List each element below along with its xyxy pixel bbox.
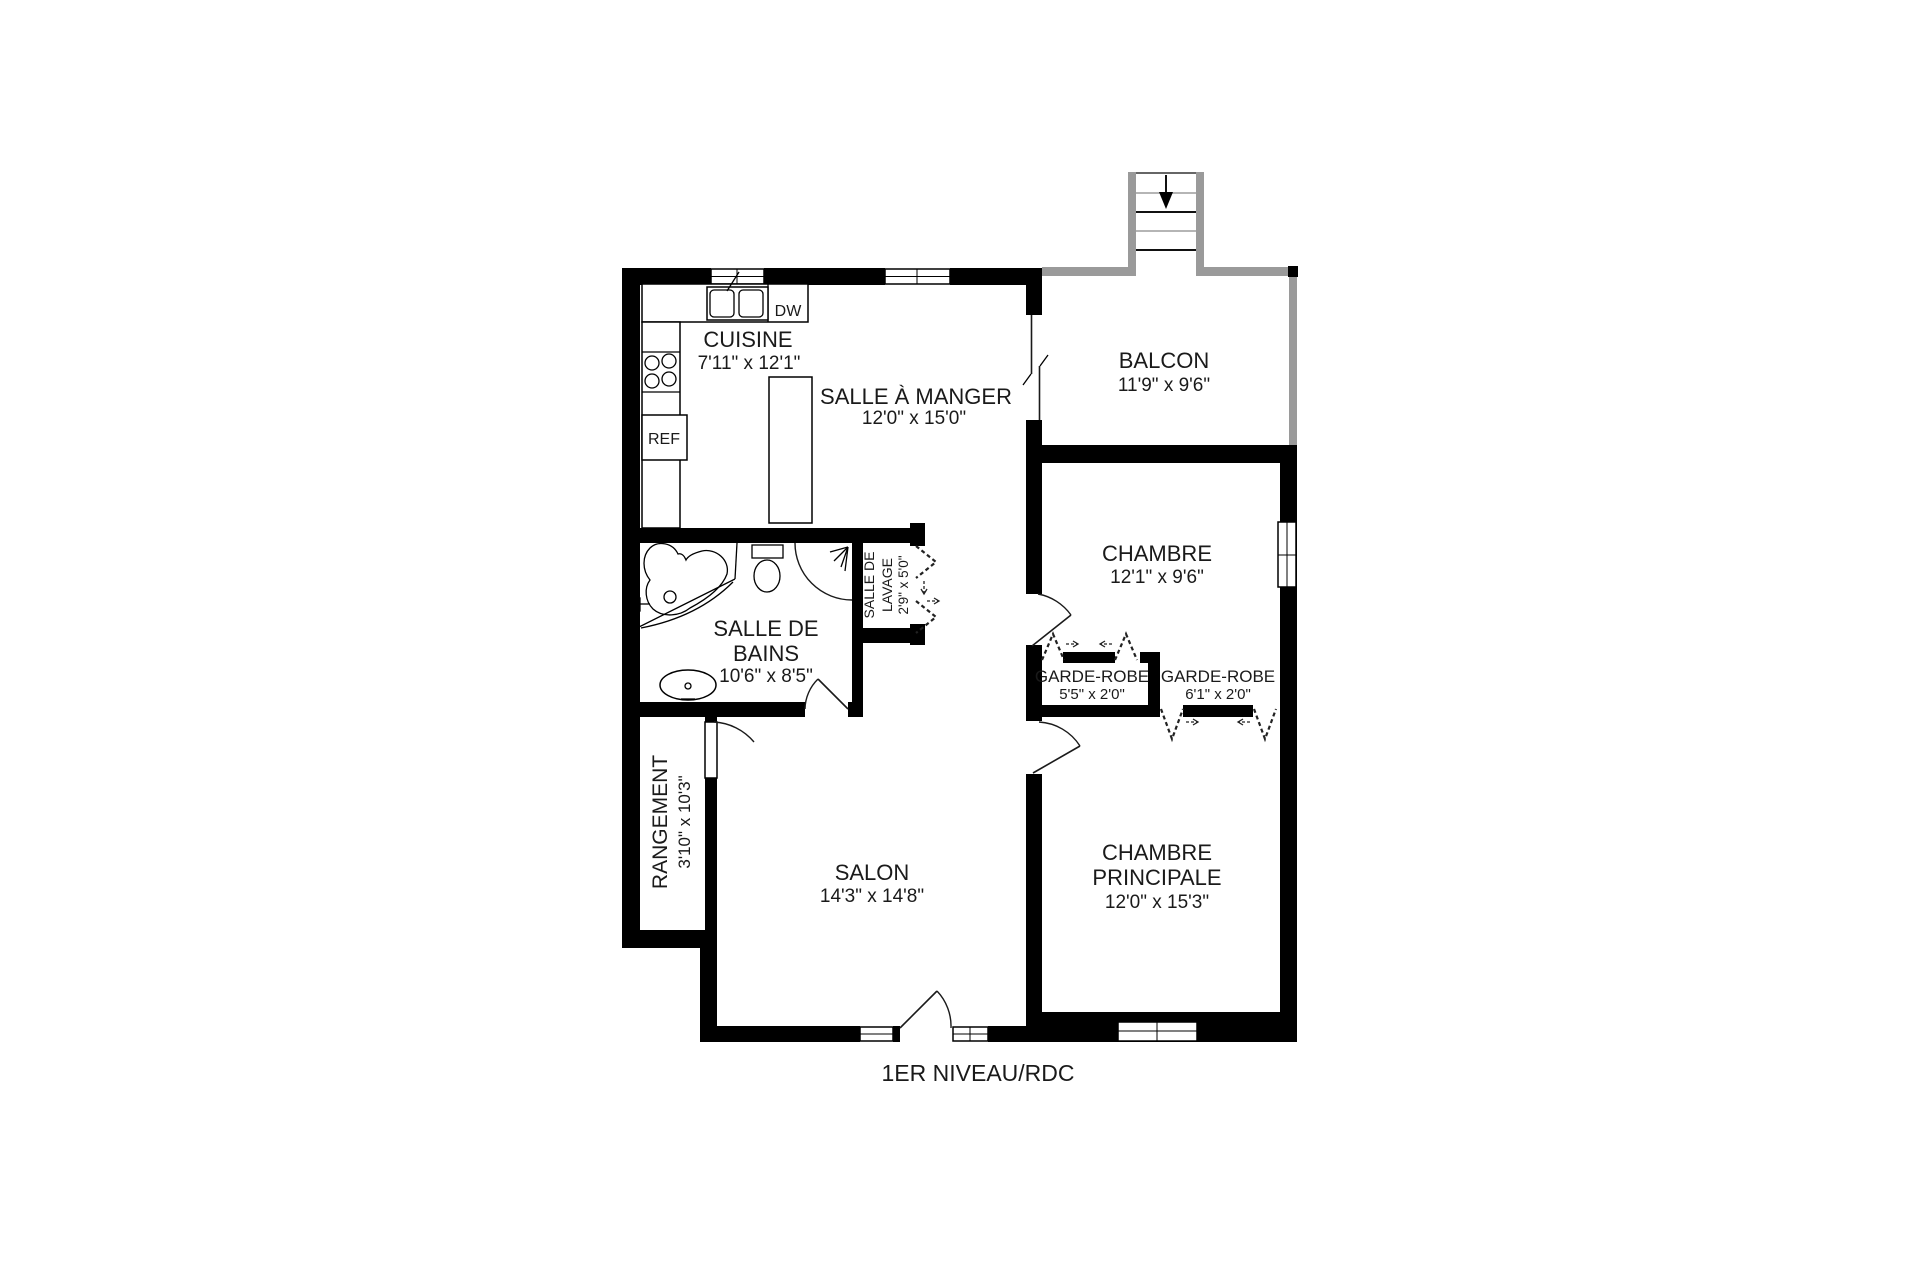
floor-plan-page: DW REF CUISIN <box>0 0 1920 1279</box>
dims-salle-a-manger: 12'0" x 15'0" <box>862 408 966 429</box>
dims-salle-de-bains: 10'6" x 8'5" <box>719 666 813 687</box>
label-rangement: RANGEMENT <box>649 755 672 889</box>
wall <box>852 643 863 717</box>
plan-title: 1ER NIVEAU/RDC <box>882 1060 1075 1086</box>
bifold-lavage <box>916 546 939 633</box>
wall <box>1026 268 1042 315</box>
wall <box>622 268 640 947</box>
stairs <box>1136 173 1196 250</box>
dims-rangement: 3'10" x 10'3" <box>675 775 694 868</box>
door-rangement <box>705 722 754 778</box>
door-chambre-principale <box>1033 722 1080 773</box>
dims-garde-robe-gauche: 5'5" x 2'0" <box>1059 686 1125 703</box>
kitchen-fixtures: DW REF <box>642 272 812 528</box>
dims-chambre-principale: 12'0" x 15'3" <box>1105 892 1209 913</box>
dishwasher-label: DW <box>775 303 803 320</box>
dims-salle-de-lavage: 2'9" x 5'0" <box>896 555 911 614</box>
wall <box>700 1026 860 1042</box>
room-labels: CUISINE 7'11" x 12'1" SALLE À MANGER 12'… <box>649 327 1275 913</box>
window-chambre <box>1278 522 1296 587</box>
wall <box>910 523 925 546</box>
label-chambre: CHAMBRE <box>1102 541 1212 566</box>
wall <box>1026 420 1042 594</box>
toilet-icon <box>752 545 783 592</box>
label-balcon: BALCON <box>1119 348 1209 373</box>
window-chambre-principale <box>1118 1022 1197 1041</box>
wall <box>700 930 717 1042</box>
wall <box>1026 774 1042 1042</box>
label-salle-de-bains-1: SALLE DE <box>713 616 818 641</box>
window-dining <box>885 269 950 284</box>
stair-wall <box>1196 172 1204 276</box>
dims-cuisine: 7'11" x 12'1" <box>698 353 801 374</box>
wall <box>705 702 717 722</box>
kitchen-island <box>769 377 812 523</box>
stair-down-arrow-icon <box>1159 192 1173 209</box>
label-salle-de-bains-2: BAINS <box>733 641 799 666</box>
label-chambre-principale-1: CHAMBRE <box>1102 840 1212 865</box>
label-salle-de-lavage-1: SALLE DE <box>861 552 877 619</box>
window-kitchen <box>711 269 764 284</box>
dims-salon: 14'3" x 14'8" <box>820 886 924 907</box>
wall <box>1183 705 1253 717</box>
window-salon-left <box>860 1027 893 1041</box>
label-garde-robe-gauche: GARDE-ROBE <box>1035 667 1149 686</box>
stair-wall <box>1128 172 1136 276</box>
pedestal-sink-icon <box>660 670 716 700</box>
wall <box>764 268 885 285</box>
wall <box>1063 652 1115 663</box>
label-chambre-principale-2: PRINCIPALE <box>1092 865 1221 890</box>
wall <box>893 1026 900 1042</box>
shower-icon <box>795 543 852 600</box>
label-cuisine: CUISINE <box>703 327 792 352</box>
window-salon-right <box>953 1027 988 1041</box>
refrigerator-label: REF <box>648 431 680 448</box>
porch-wall <box>1042 267 1128 276</box>
floor-plan: DW REF CUISIN <box>0 0 1920 1279</box>
label-salon: SALON <box>835 860 910 885</box>
wall <box>1040 445 1297 463</box>
door-entree-salon <box>900 991 951 1028</box>
wall <box>1042 705 1160 717</box>
label-garde-robe-droite: GARDE-ROBE <box>1161 667 1275 686</box>
porch-post <box>1288 266 1298 277</box>
wall <box>705 778 717 930</box>
dims-chambre: 12'1" x 9'6" <box>1110 567 1204 588</box>
porch-wall <box>1204 267 1289 276</box>
label-salle-a-manger: SALLE À MANGER <box>820 384 1012 409</box>
dims-garde-robe-droite: 6'1" x 2'0" <box>1185 686 1251 703</box>
dims-balcon: 11'9" x 9'6" <box>1118 375 1210 396</box>
wall <box>852 628 925 643</box>
porch-wall <box>1289 267 1297 445</box>
patio-sliding-door <box>1023 315 1048 420</box>
label-salle-de-lavage-2: LAVAGE <box>879 558 895 612</box>
wall <box>622 528 925 543</box>
